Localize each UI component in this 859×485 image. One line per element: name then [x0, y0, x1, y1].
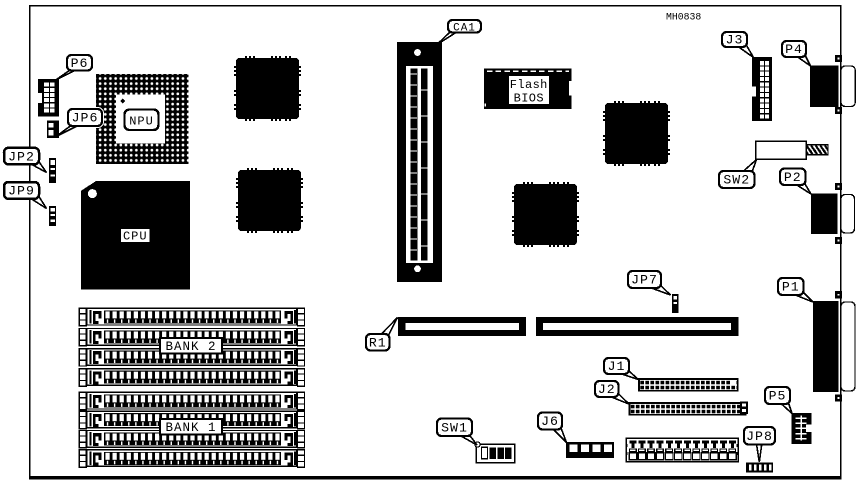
svg-text:Flash: Flash	[510, 78, 548, 92]
svg-text:NPU: NPU	[129, 115, 154, 129]
svg-text:JP9: JP9	[8, 184, 35, 199]
svg-text:JP2: JP2	[8, 149, 35, 164]
svg-text:BIOS: BIOS	[514, 92, 544, 106]
svg-text:P1: P1	[782, 280, 800, 295]
svg-text:BANK 2: BANK 2	[165, 340, 216, 354]
svg-text:JP7: JP7	[631, 273, 658, 288]
svg-text:P5: P5	[769, 389, 787, 404]
svg-text:R1: R1	[369, 335, 387, 350]
svg-text:CPU: CPU	[123, 230, 148, 244]
svg-text:MH0838: MH0838	[666, 12, 701, 23]
svg-text:P6: P6	[71, 56, 89, 71]
svg-text:JP8: JP8	[746, 429, 773, 444]
svg-text:SW2: SW2	[723, 173, 750, 188]
svg-text:CA1: CA1	[453, 22, 476, 34]
svg-text:SW1: SW1	[441, 420, 468, 435]
svg-text:JP6: JP6	[72, 111, 99, 126]
svg-text:J6: J6	[541, 414, 559, 429]
svg-text:BANK 1: BANK 1	[165, 421, 216, 435]
svg-text:J3: J3	[726, 33, 744, 48]
svg-text:J2: J2	[598, 382, 616, 397]
svg-text:J1: J1	[608, 359, 626, 374]
svg-text:P2: P2	[784, 170, 802, 185]
svg-text:P4: P4	[785, 42, 803, 57]
